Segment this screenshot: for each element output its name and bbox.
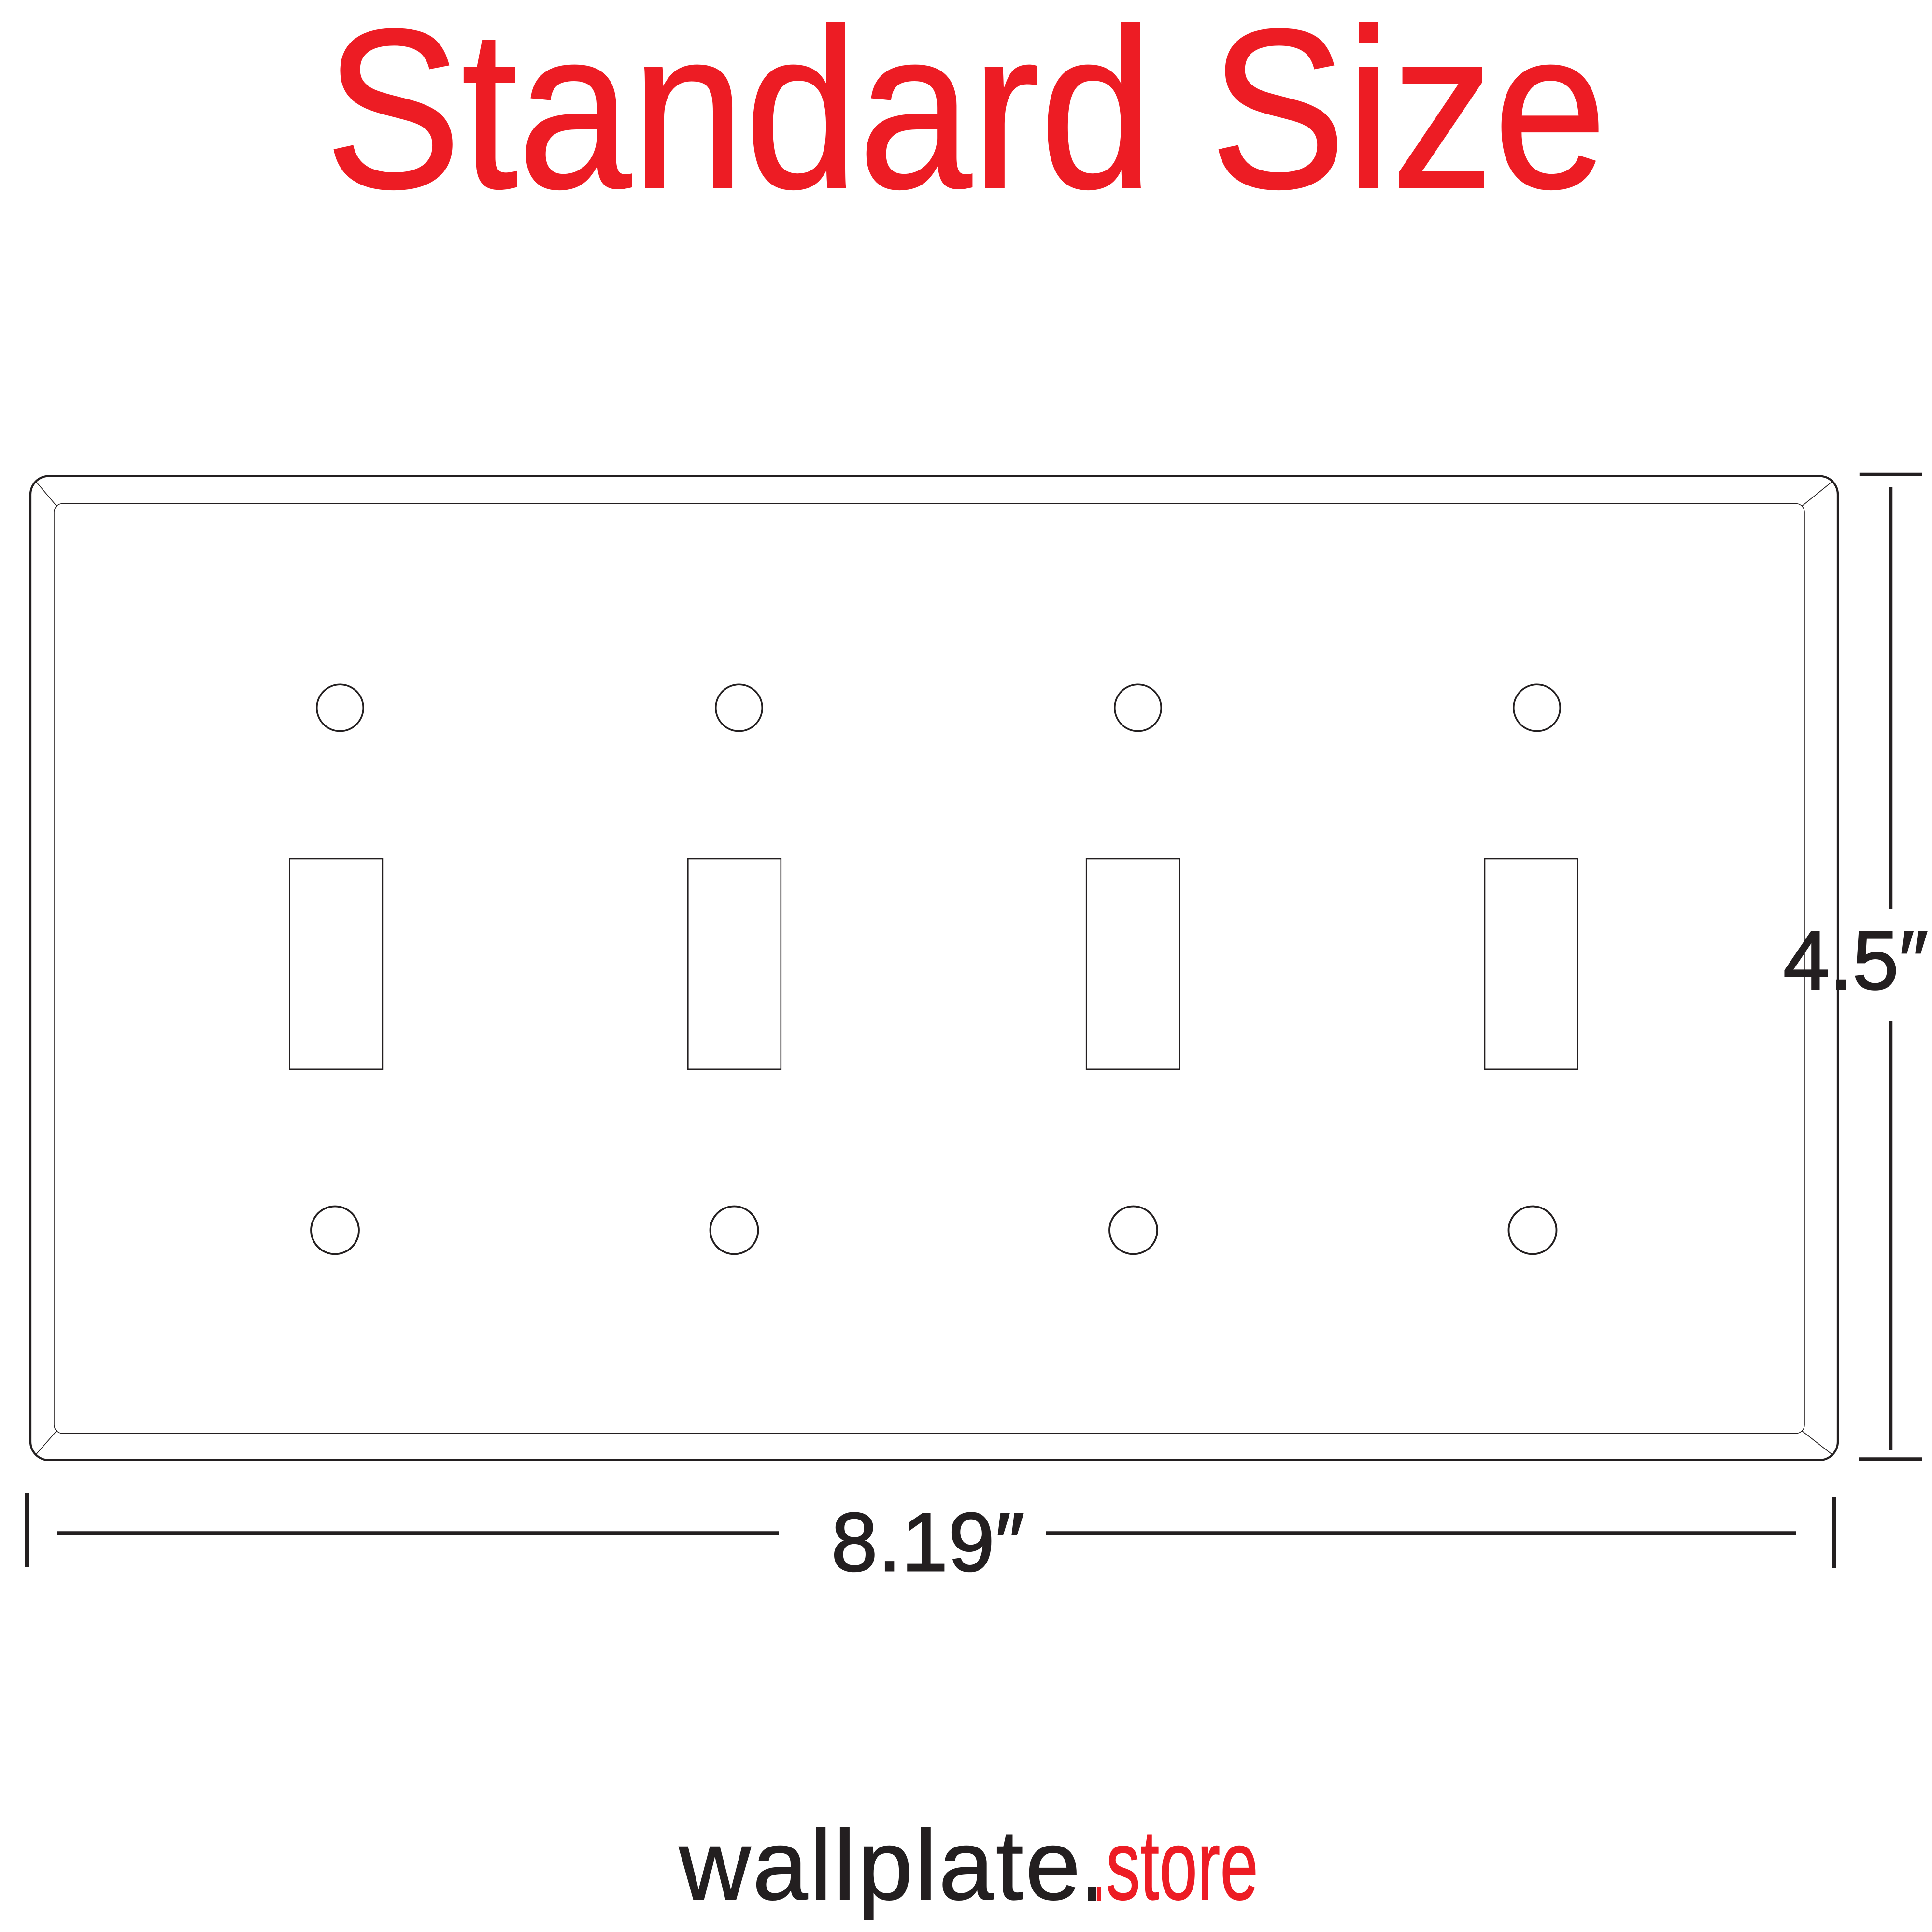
svg-text:8.19″: 8.19″ xyxy=(831,1496,1024,1589)
svg-text:wallplate: wallplate xyxy=(679,1810,1080,1920)
svg-text:store: store xyxy=(1106,1810,1258,1920)
svg-text:Standard Size: Standard Size xyxy=(325,0,1607,236)
svg-text:4.5″: 4.5″ xyxy=(1783,914,1928,1007)
